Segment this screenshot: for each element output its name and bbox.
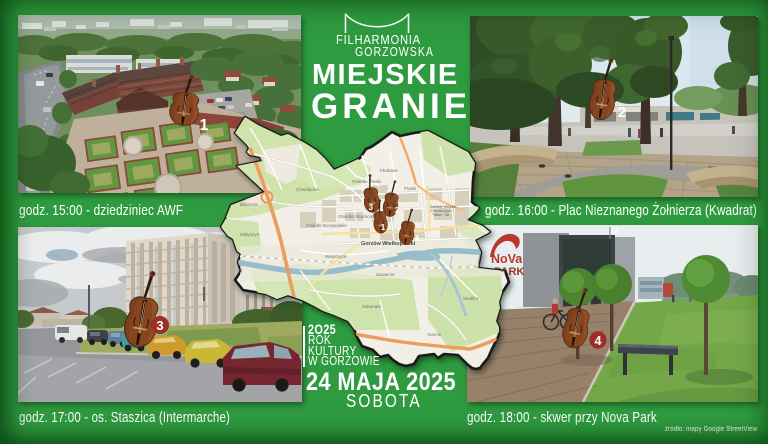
svg-text:2: 2: [395, 206, 400, 215]
svg-text:Baczyna: Baczyna: [240, 202, 258, 207]
svg-text:1: 1: [381, 223, 386, 232]
svg-text:"Stilon" SA: "Stilon" SA: [432, 213, 450, 217]
svg-text:4: 4: [415, 234, 420, 243]
svg-text:3: 3: [369, 203, 374, 212]
svg-text:Zakanale: Zakanale: [362, 304, 381, 309]
svg-text:Piaski: Piaski: [404, 186, 416, 191]
svg-text:Osiedle Staszica: Osiedle Staszica: [338, 214, 373, 219]
svg-text:Chwalęcice: Chwalęcice: [296, 187, 320, 192]
svg-text:Kłodawa: Kłodawa: [380, 168, 398, 173]
svg-text:Siedlice: Siedlice: [463, 296, 480, 301]
svg-text:Wieprzyce: Wieprzyce: [325, 254, 347, 259]
svg-text:Osiedle Piaski: Osiedle Piaski: [352, 179, 381, 184]
svg-text:Zawarcie: Zawarcie: [376, 272, 395, 277]
svg-text:Małyszyn: Małyszyn: [240, 232, 260, 237]
svg-text:Osiedle Europejskie: Osiedle Europejskie: [306, 223, 347, 228]
svg-text:Karnin: Karnin: [428, 332, 442, 337]
